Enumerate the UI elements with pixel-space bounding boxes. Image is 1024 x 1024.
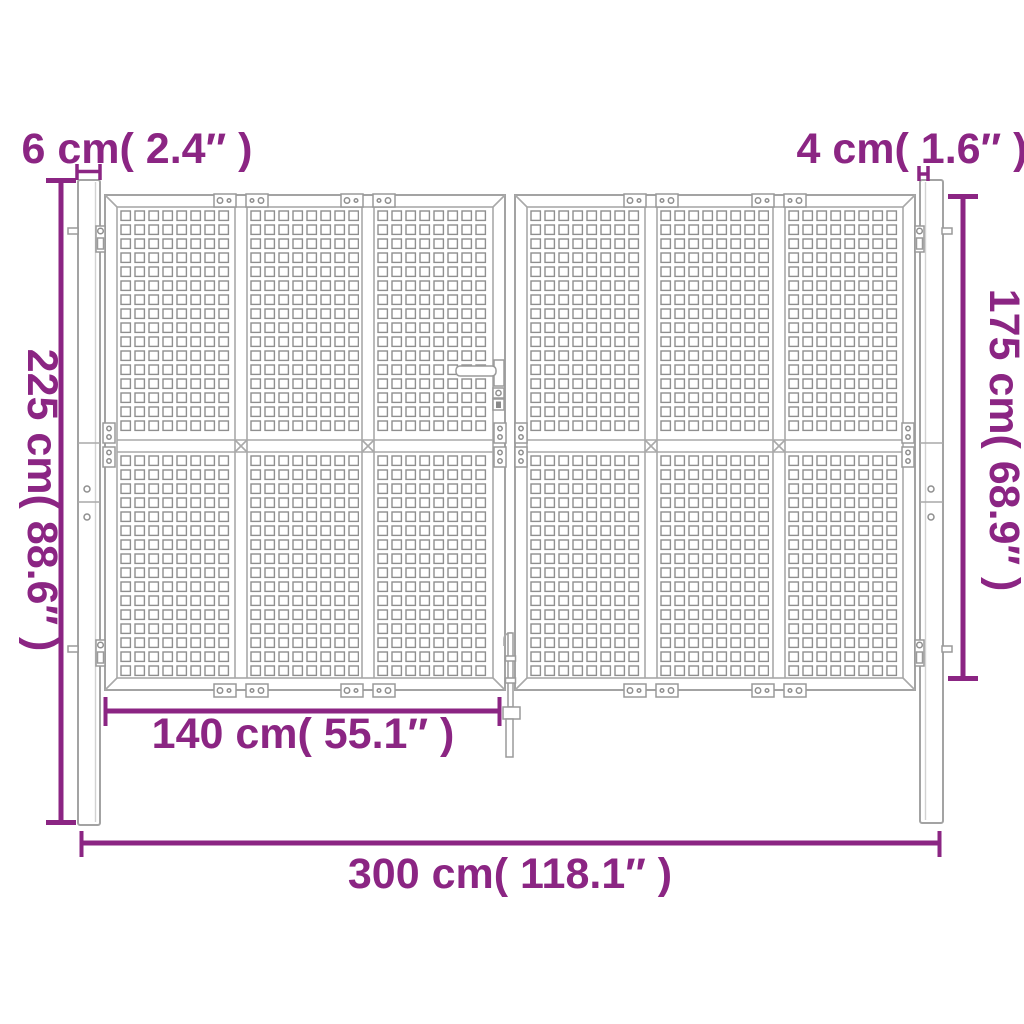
dim-leaf-width: 140 cm( 55.1″ ) [106, 697, 500, 758]
dim-post-height: 225 cm( 88.6″ ) [18, 181, 76, 823]
dim-gate-height: 175 cm( 68.9″ ) [948, 197, 1024, 679]
dim-left-post-width: 6 cm( 2.4″ ) [22, 125, 253, 180]
left-post-width-label: 6 cm( 2.4″ ) [22, 125, 253, 173]
post-height-label: 225 cm( 88.6″ ) [18, 349, 66, 652]
dim-total-width: 300 cm( 118.1″ ) [82, 831, 940, 898]
gate-dimension-diagram: 225 cm( 88.6″ ) 6 cm( 2.4″ ) 4 cm( 1.6″ … [0, 0, 1024, 1024]
right-post [920, 180, 952, 823]
gate-height-label: 175 cm( 68.9″ ) [980, 289, 1024, 592]
gate-right-leaf [515, 194, 915, 697]
diagram-canvas: 225 cm( 88.6″ ) 6 cm( 2.4″ ) 4 cm( 1.6″ … [0, 0, 1024, 1024]
dim-right-post-width: 4 cm( 1.6″ ) [797, 125, 1024, 181]
left-post [68, 180, 100, 825]
leaf-width-label: 140 cm( 55.1″ ) [152, 710, 455, 758]
right-post-width-label: 4 cm( 1.6″ ) [797, 125, 1024, 173]
total-width-label: 300 cm( 118.1″ ) [348, 850, 672, 898]
gate-lock [493, 388, 504, 410]
gate-left-leaf [103, 194, 506, 697]
